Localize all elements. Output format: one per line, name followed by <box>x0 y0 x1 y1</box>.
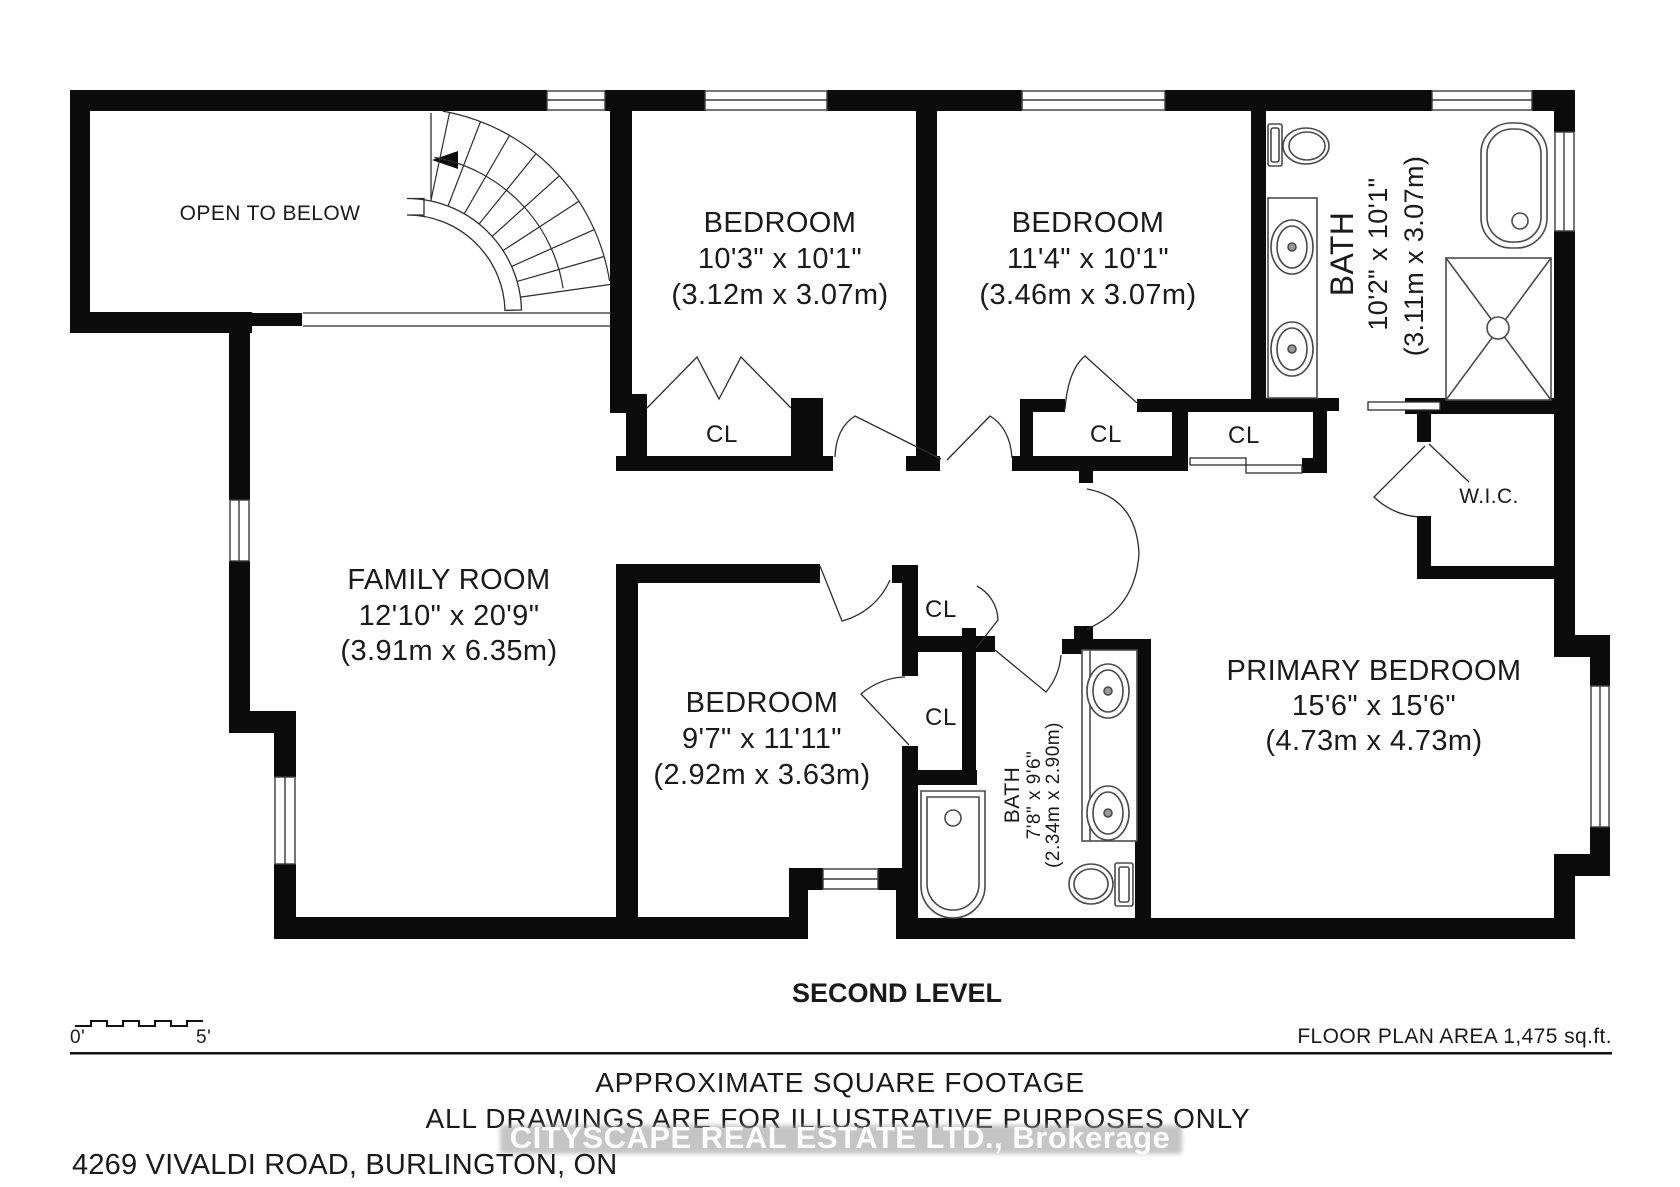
svg-text:CL: CL <box>1090 421 1122 448</box>
svg-text:BATH: BATH <box>1324 212 1360 297</box>
svg-text:BEDROOM: BEDROOM <box>1012 207 1165 239</box>
svg-text:CL: CL <box>706 421 738 448</box>
svg-text:BEDROOM: BEDROOM <box>686 687 839 719</box>
svg-text:W.I.C.: W.I.C. <box>1459 485 1519 508</box>
svg-text:CL: CL <box>925 704 957 731</box>
svg-text:12'10" x 20'9": 12'10" x 20'9" <box>359 600 540 632</box>
svg-text:SECOND LEVEL: SECOND LEVEL <box>792 978 1002 1008</box>
svg-text:(2.34m x 2.90m): (2.34m x 2.90m) <box>1043 722 1064 868</box>
svg-text:(3.46m x 3.07m): (3.46m x 3.07m) <box>979 279 1196 311</box>
svg-text:CL: CL <box>1228 422 1260 449</box>
svg-text:FAMILY ROOM: FAMILY ROOM <box>347 564 550 596</box>
svg-text:11'4" x 10'1": 11'4" x 10'1" <box>1007 243 1169 275</box>
svg-text:0': 0' <box>70 1027 85 1048</box>
svg-text:APPROXIMATE SQUARE FOOTAGE: APPROXIMATE SQUARE FOOTAGE <box>595 1067 1085 1098</box>
svg-text:15'6" x 15'6": 15'6" x 15'6" <box>1292 690 1456 722</box>
svg-text:4269 VIVALDI ROAD, BURLINGTON,: 4269 VIVALDI ROAD, BURLINGTON, ON <box>72 1149 617 1181</box>
svg-text:CL: CL <box>925 596 957 623</box>
svg-text:PRIMARY BEDROOM: PRIMARY BEDROOM <box>1227 655 1522 687</box>
svg-text:(3.12m x 3.07m): (3.12m x 3.07m) <box>671 279 888 311</box>
svg-text:BATH: BATH <box>1001 767 1024 823</box>
svg-text:9'7" x 11'11": 9'7" x 11'11" <box>682 723 842 755</box>
svg-text:FLOOR PLAN AREA 1,475 sq.ft.: FLOOR PLAN AREA 1,475 sq.ft. <box>1297 1025 1612 1048</box>
svg-text:(3.91m x 6.35m): (3.91m x 6.35m) <box>340 635 557 667</box>
svg-text:(3.11m x 3.07m): (3.11m x 3.07m) <box>1399 156 1429 357</box>
svg-text:BEDROOM: BEDROOM <box>704 207 857 239</box>
svg-text:10'2" x 10'1": 10'2" x 10'1" <box>1363 177 1393 330</box>
svg-text:(4.73m x 4.73m): (4.73m x 4.73m) <box>1265 725 1482 757</box>
svg-text:(2.92m x 3.63m): (2.92m x 3.63m) <box>653 759 870 791</box>
svg-text:5': 5' <box>196 1027 211 1048</box>
svg-text:OPEN TO BELOW: OPEN TO BELOW <box>180 202 361 225</box>
svg-text:10'3" x 10'1": 10'3" x 10'1" <box>698 243 862 275</box>
svg-text:7'8" x 9'6": 7'8" x 9'6" <box>1024 751 1045 840</box>
